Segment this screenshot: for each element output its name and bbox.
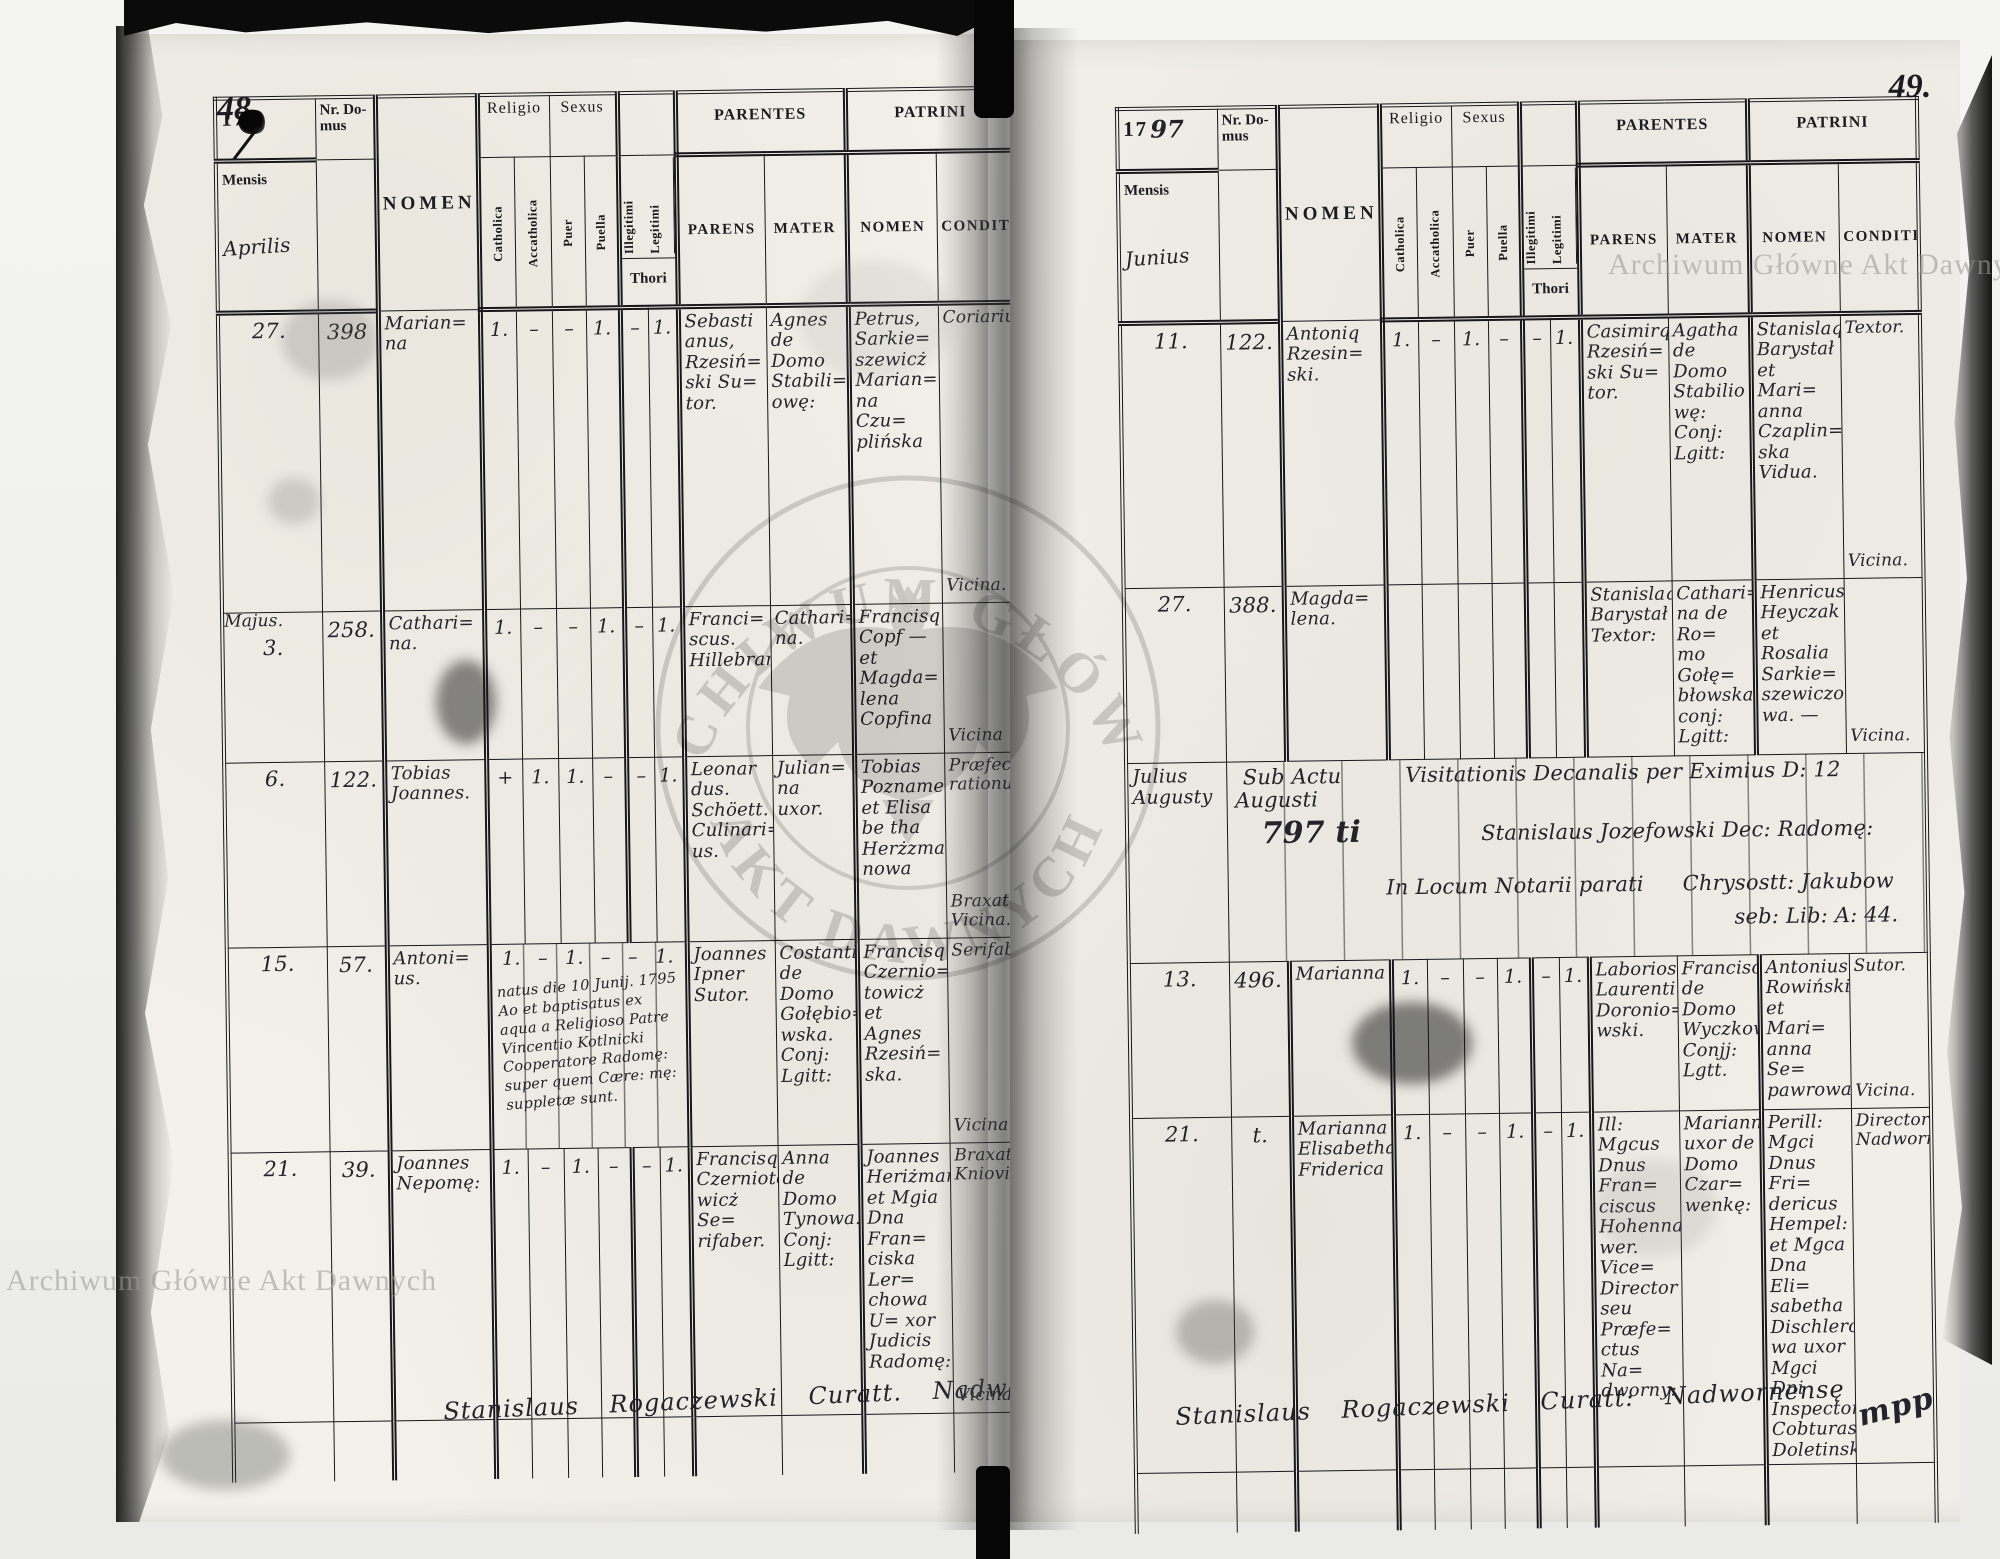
- puer-header: Puer: [550, 156, 586, 308]
- cell-patrini: Perill: Mgci Dnus Fri= dericus Hempel: e…: [1761, 1108, 1856, 1465]
- baptism-register-table-left: 17 Nr. Do- mus NOMEN Religio Sexus PAREN…: [213, 86, 1036, 1483]
- footer-cell: [1596, 1466, 1685, 1527]
- cell-catholica: 1.: [480, 309, 520, 609]
- year-cell: 17: [215, 97, 316, 160]
- cell-date: 27.: [1124, 587, 1226, 763]
- legitimi-label: Legitimi: [1548, 167, 1576, 263]
- header-row-top: 17 Nr. Do- mus NOMEN Religio Sexus PAREN…: [215, 88, 1016, 161]
- cell-catholica: 1.: [1391, 959, 1429, 1114]
- cell-patrini: Stanislaq Barystał et Mari= anna Czaplin…: [1750, 313, 1844, 579]
- footer-cell: [531, 1418, 568, 1478]
- cell-legitimi: 1.: [652, 606, 684, 756]
- footer-row: [1136, 1463, 1937, 1534]
- cell-date: Majus.3.: [222, 611, 324, 762]
- cell-illegitimi: –: [1531, 957, 1561, 1112]
- cell-catholica: 1.: [484, 609, 522, 759]
- cell-nr: 258.: [322, 610, 384, 761]
- cell-puella: –: [1488, 318, 1526, 583]
- cell-accatholica: –: [1418, 318, 1458, 583]
- footer-cell: [1566, 1467, 1597, 1527]
- cell-catholica: +: [486, 759, 525, 944]
- illegitimi-label: Illegitimi: [1522, 168, 1549, 264]
- cell-puer: –: [556, 608, 592, 758]
- cell-puer: 1.: [1454, 318, 1492, 583]
- cell-puer: –: [1463, 958, 1499, 1113]
- cell-nomen: Antoniq Rzesin= ski.: [1280, 319, 1386, 585]
- cell-legitimi: 1.: [648, 306, 682, 606]
- legitimacy-header-spacer: [617, 92, 676, 155]
- cell-accatholica: –: [528, 1148, 568, 1418]
- spine-shadow-top: [974, 0, 1014, 118]
- cell-puella: [1492, 582, 1528, 757]
- cell-puella: 1.: [590, 607, 626, 757]
- cell-nomen: Marianna: [1289, 959, 1393, 1115]
- cell-conditio: Vicina.: [1844, 577, 1926, 753]
- cell-puella: –: [598, 1147, 636, 1417]
- cell-nomen: Magda= lena.: [1284, 584, 1388, 760]
- cell-legitimi: 1.: [660, 1146, 694, 1416]
- cell-date: 27.: [218, 311, 322, 612]
- footer-cell: [781, 1414, 864, 1475]
- cell-patrini: Petrus, Sarkie= szewicż Marian= na Czu= …: [848, 303, 942, 604]
- nomen-header: NOMEN: [1277, 105, 1382, 320]
- header-row-sub: Mensis Junius Catholica Accatholica Puer…: [1118, 160, 1920, 323]
- right-page-content: 49. 1797 Nr. Do- mus NOMEN Religio Sexus…: [1010, 33, 1981, 1528]
- record-row: 11. 122. Antoniq Rzesin= ski. 1. – 1. – …: [1120, 312, 1924, 588]
- conditio-subheader: CONDITIO: [1838, 160, 1920, 313]
- cell-legitimi: [1554, 582, 1586, 757]
- footer-cell: [1398, 1470, 1435, 1530]
- cell-patrini: Tobias Poznamer et Elisa be tha Herżzma …: [854, 753, 947, 939]
- footer-cell: [635, 1417, 664, 1477]
- cell-legitimi: 1.: [1550, 317, 1584, 582]
- footer-cell: [601, 1417, 636, 1477]
- footer-row: [233, 1411, 1034, 1482]
- parens-subheader: PARENS: [676, 153, 766, 306]
- cell-nomen: Cathari= na.: [382, 609, 486, 760]
- scanned-register-spread: { "watermark": { "name": "Archiwum Główn…: [0, 0, 2000, 1559]
- accatholica-header: Accatholica: [514, 156, 552, 308]
- visitation-note-row: Julius Augusty Sub ActuVisitationis Deca…: [1126, 752, 1929, 963]
- right-page: 49. 1797 Nr. Do- mus NOMEN Religio Sexus…: [1010, 40, 1960, 1522]
- mensis-header: Mensis Junius: [1118, 170, 1220, 323]
- cell-mater: Cathari= na.: [770, 604, 854, 755]
- cell-nomen: Tobias Joannes.: [384, 759, 489, 945]
- record-row: 15. 57. Antoni= us. 1. – 1. – – 1. natus…: [227, 937, 1030, 1153]
- cell-accatholica: [1422, 583, 1460, 758]
- cell-illegitimi: –: [1522, 317, 1554, 582]
- cell-nr: 57.: [327, 945, 390, 1151]
- cell-parens: Leonar dus. Schöett. Culinari= us.: [684, 755, 775, 941]
- cell-months: Julius Augusty: [1126, 762, 1229, 963]
- cell-conditio: Sutor.Vicina.: [1849, 952, 1931, 1108]
- footer-cell: [1504, 1468, 1539, 1528]
- footer-cell: [333, 1420, 394, 1481]
- cell-date: 21.: [230, 1151, 334, 1422]
- nomen-header: NOMEN: [375, 95, 480, 310]
- nr-domus-sub: [316, 159, 378, 312]
- footer-cell: [1470, 1469, 1505, 1529]
- cell-illegitimi: –: [632, 1147, 664, 1417]
- record-row: 27. 398 Marian= na 1. – – 1. – 1. Sebast…: [218, 302, 1022, 613]
- nr-domus-header: Nr. Do- mus: [315, 97, 376, 160]
- cell-nr: 398: [318, 311, 382, 612]
- patrini-nomen-subheader: NOMEN: [846, 151, 938, 304]
- cell-legitimi: 1.: [654, 756, 687, 941]
- cell-date: 13.: [1129, 962, 1231, 1118]
- puella-header: Puella: [584, 155, 620, 307]
- cell-mater: Franciscad de Domo Wyczkow Conjj: Lgtt.: [1677, 954, 1761, 1110]
- mater-subheader: MATER: [764, 152, 848, 305]
- month-handwritten: Aprilis: [222, 232, 313, 261]
- cell-parens: Francisq Czernioto= wicż Se= rifaber.: [690, 1145, 782, 1416]
- footer-cell: [1136, 1472, 1237, 1533]
- cell-accatholica: –: [520, 608, 558, 758]
- puer-header: Puer: [1452, 166, 1488, 318]
- catholica-header: Catholica: [478, 157, 516, 309]
- cell-puer: 1.: [558, 758, 595, 943]
- mensis-header: Mensis Aprilis: [216, 159, 318, 312]
- parentes-header: PARENTES: [675, 90, 846, 154]
- thori-label: Thori: [622, 270, 675, 288]
- spine-shadow-bottom: [976, 1466, 1010, 1559]
- legitimi-label: Legitimi: [646, 157, 674, 253]
- cell-date: 15.: [227, 946, 330, 1152]
- footer-cell: [1538, 1468, 1567, 1528]
- cell-parens: Laboriosq Laurentiq Doronio= wski.: [1589, 955, 1679, 1111]
- religio-header: Religio: [477, 94, 550, 157]
- thori-label: Thori: [1524, 280, 1577, 298]
- year-printed: 17: [1123, 117, 1148, 141]
- cell-nomen: Joannes Nepomę:: [390, 1149, 496, 1420]
- cell-nomen: Antoni= us.: [387, 944, 492, 1150]
- mater-subheader: MATER: [1666, 162, 1750, 315]
- cell-illegitimi: –: [624, 607, 654, 757]
- cell-illegitimi: –: [626, 757, 657, 942]
- cell-mater: Agnes de Domo Stabili= owę:: [766, 304, 852, 605]
- religio-header: Religio: [1379, 104, 1452, 167]
- record-row: 27. 388. Magda= lena. Stanislaq Barystał…: [1124, 577, 1926, 763]
- cell-puella: –: [592, 757, 629, 942]
- patrini-header: PATRINI: [1747, 98, 1918, 162]
- cell-accatholica: –: [516, 308, 556, 608]
- header-row-sub: Mensis Aprilis Catholica Accatholica Pue…: [216, 150, 1018, 313]
- cell-puer: [1458, 583, 1494, 758]
- year-handwritten: 97: [1150, 114, 1184, 143]
- cell-puer: 1.: [564, 1148, 602, 1418]
- thori-header: Illegitimi Legitimi Thori: [618, 154, 678, 307]
- cell-mater: Julian= na uxor.: [772, 754, 857, 940]
- cell-nomen: Marian= na: [378, 309, 484, 610]
- cell-date: 6.: [224, 761, 327, 947]
- parens-subheader: PARENS: [1578, 163, 1668, 316]
- header-row-top: 1797 Nr. Do- mus NOMEN Religio Sexus PAR…: [1117, 98, 1918, 171]
- catholica-header: Catholica: [1380, 167, 1418, 319]
- cell-parens: Joannes Ipner Sutor.: [687, 940, 778, 1146]
- nr-domus-sub: [1218, 169, 1280, 322]
- cell-puella: 1.: [586, 307, 624, 607]
- cell-puella: 1.: [1497, 957, 1533, 1112]
- footer-cell: [1434, 1469, 1471, 1529]
- thori-header: Illegitimi Legitimi Thori: [1520, 165, 1580, 318]
- footer-cell: [1684, 1465, 1767, 1526]
- illegitimi-label: Illegitimi: [620, 157, 647, 253]
- cell-nr: 122.: [324, 760, 387, 946]
- footer-cell: [1856, 1463, 1937, 1524]
- cell-catholica: [1386, 584, 1424, 759]
- parentes-header: PARENTES: [1577, 100, 1748, 164]
- sexus-header: Sexus: [1451, 104, 1520, 167]
- patrini-nomen-subheader: NOMEN: [1748, 161, 1840, 314]
- footer-cell: [233, 1421, 334, 1482]
- footer-cell: [1766, 1464, 1857, 1525]
- footer-cell: [1296, 1470, 1399, 1531]
- cell-nr: 496.: [1229, 961, 1291, 1117]
- cell-catholica: 1.: [492, 1149, 532, 1419]
- year-cell: 1797: [1117, 108, 1218, 171]
- cell-marks-with-note: 1. – 1. – – 1. natus die 10 Junij. 1795 …: [489, 941, 690, 1149]
- cell-patrini: Francisq Copf — et Magda= lena Copfina: [852, 603, 944, 754]
- conditio-subheader: CONDITIO: [936, 150, 1018, 303]
- record-row: 6. 122. Tobias Joannes. + 1. 1. – – 1. L…: [224, 752, 1027, 948]
- cell-date: 11.: [1120, 322, 1224, 588]
- cell-parens: Stanislaq Barystał Textor:: [1584, 580, 1674, 756]
- cell-mater: Cathari= na de Ro= mo Gołę= błowska conj…: [1672, 579, 1756, 755]
- cell-illegitimi: –: [620, 307, 652, 607]
- legitimacy-header-spacer: [1519, 103, 1578, 166]
- nr-domus-header: Nr. Do- mus: [1217, 107, 1278, 170]
- visitation-note: Sub ActuVisitationis Decanalis per Eximi…: [1226, 752, 1929, 962]
- cell-puer: –: [552, 308, 590, 608]
- cell-legitimi: 1.: [1559, 957, 1591, 1112]
- cell-mater: Agatha de Domo Stabilio wę: Conj: Lgitt:: [1668, 314, 1754, 580]
- record-row: 13. 496. Marianna 1. – – 1. – 1. Laborio…: [1129, 952, 1931, 1118]
- puella-header: Puella: [1486, 166, 1522, 318]
- cell-patrini: Francisq Czernio= towicż et Agnes Rzesiń…: [857, 938, 950, 1144]
- baptism-note: natus die 10 Junij. 1795 Ao et baptisatu…: [489, 961, 689, 1116]
- cell-conditio: Textor.Vicina.: [1840, 312, 1924, 578]
- footer-cell: [863, 1413, 954, 1474]
- record-row: Majus.3. 258. Cathari= na. 1. – – 1. – 1…: [222, 602, 1024, 763]
- left-page: 48. 17 Nr. Do- mus NOMEN Religio Sexus P…: [126, 34, 988, 1522]
- cell-mater: Costantia de Domo Gołębio= wska. Conj: L…: [775, 939, 860, 1145]
- cell-parens: Franci= scus. Hillebrand.: [682, 605, 772, 756]
- cell-nr: 388.: [1224, 586, 1286, 762]
- cell-nr: 122.: [1220, 321, 1284, 587]
- footer-cell: [495, 1418, 532, 1478]
- cell-parens: Casimirq Rzesiń= ski Su= tor.: [1580, 315, 1672, 581]
- month-handwritten: Junius: [1124, 242, 1215, 271]
- left-page-content: 48. 17 Nr. Do- mus NOMEN Religio Sexus P…: [126, 28, 1009, 1528]
- cell-mater: Marianna uxor de Domo Czar= wenkę:: [1679, 1109, 1766, 1466]
- cell-accatholica: –: [1427, 958, 1465, 1113]
- cell-patrini: Henricus Heyczak et Rosalia Sarkie= szew…: [1754, 578, 1846, 754]
- footer-cell: [1236, 1472, 1297, 1533]
- footer-cell: [693, 1415, 782, 1476]
- accatholica-header: Accatholica: [1416, 166, 1454, 318]
- cell-nr: 39.: [330, 1150, 394, 1421]
- cell-mater: Anna de Domo Tynowa. Conj: Lgitt:: [778, 1144, 864, 1415]
- baptism-register-table-right: 1797 Nr. Do- mus NOMEN Religio Sexus PAR…: [1115, 96, 1939, 1534]
- sexus-header: Sexus: [549, 93, 618, 156]
- cell-parens: Sebasti anus, Rzesiń= ski Su= tor.: [678, 305, 770, 606]
- footer-cell: [567, 1418, 602, 1478]
- cell-accatholica: 1.: [522, 758, 561, 943]
- footer-cell: [663, 1416, 694, 1476]
- footer-cell: [393, 1419, 496, 1480]
- cell-patrini: Antonius Rowiński et Mari= anna Se= pawr…: [1759, 953, 1851, 1109]
- cell-catholica: 1.: [1382, 319, 1422, 584]
- cell-illegitimi: [1526, 582, 1556, 757]
